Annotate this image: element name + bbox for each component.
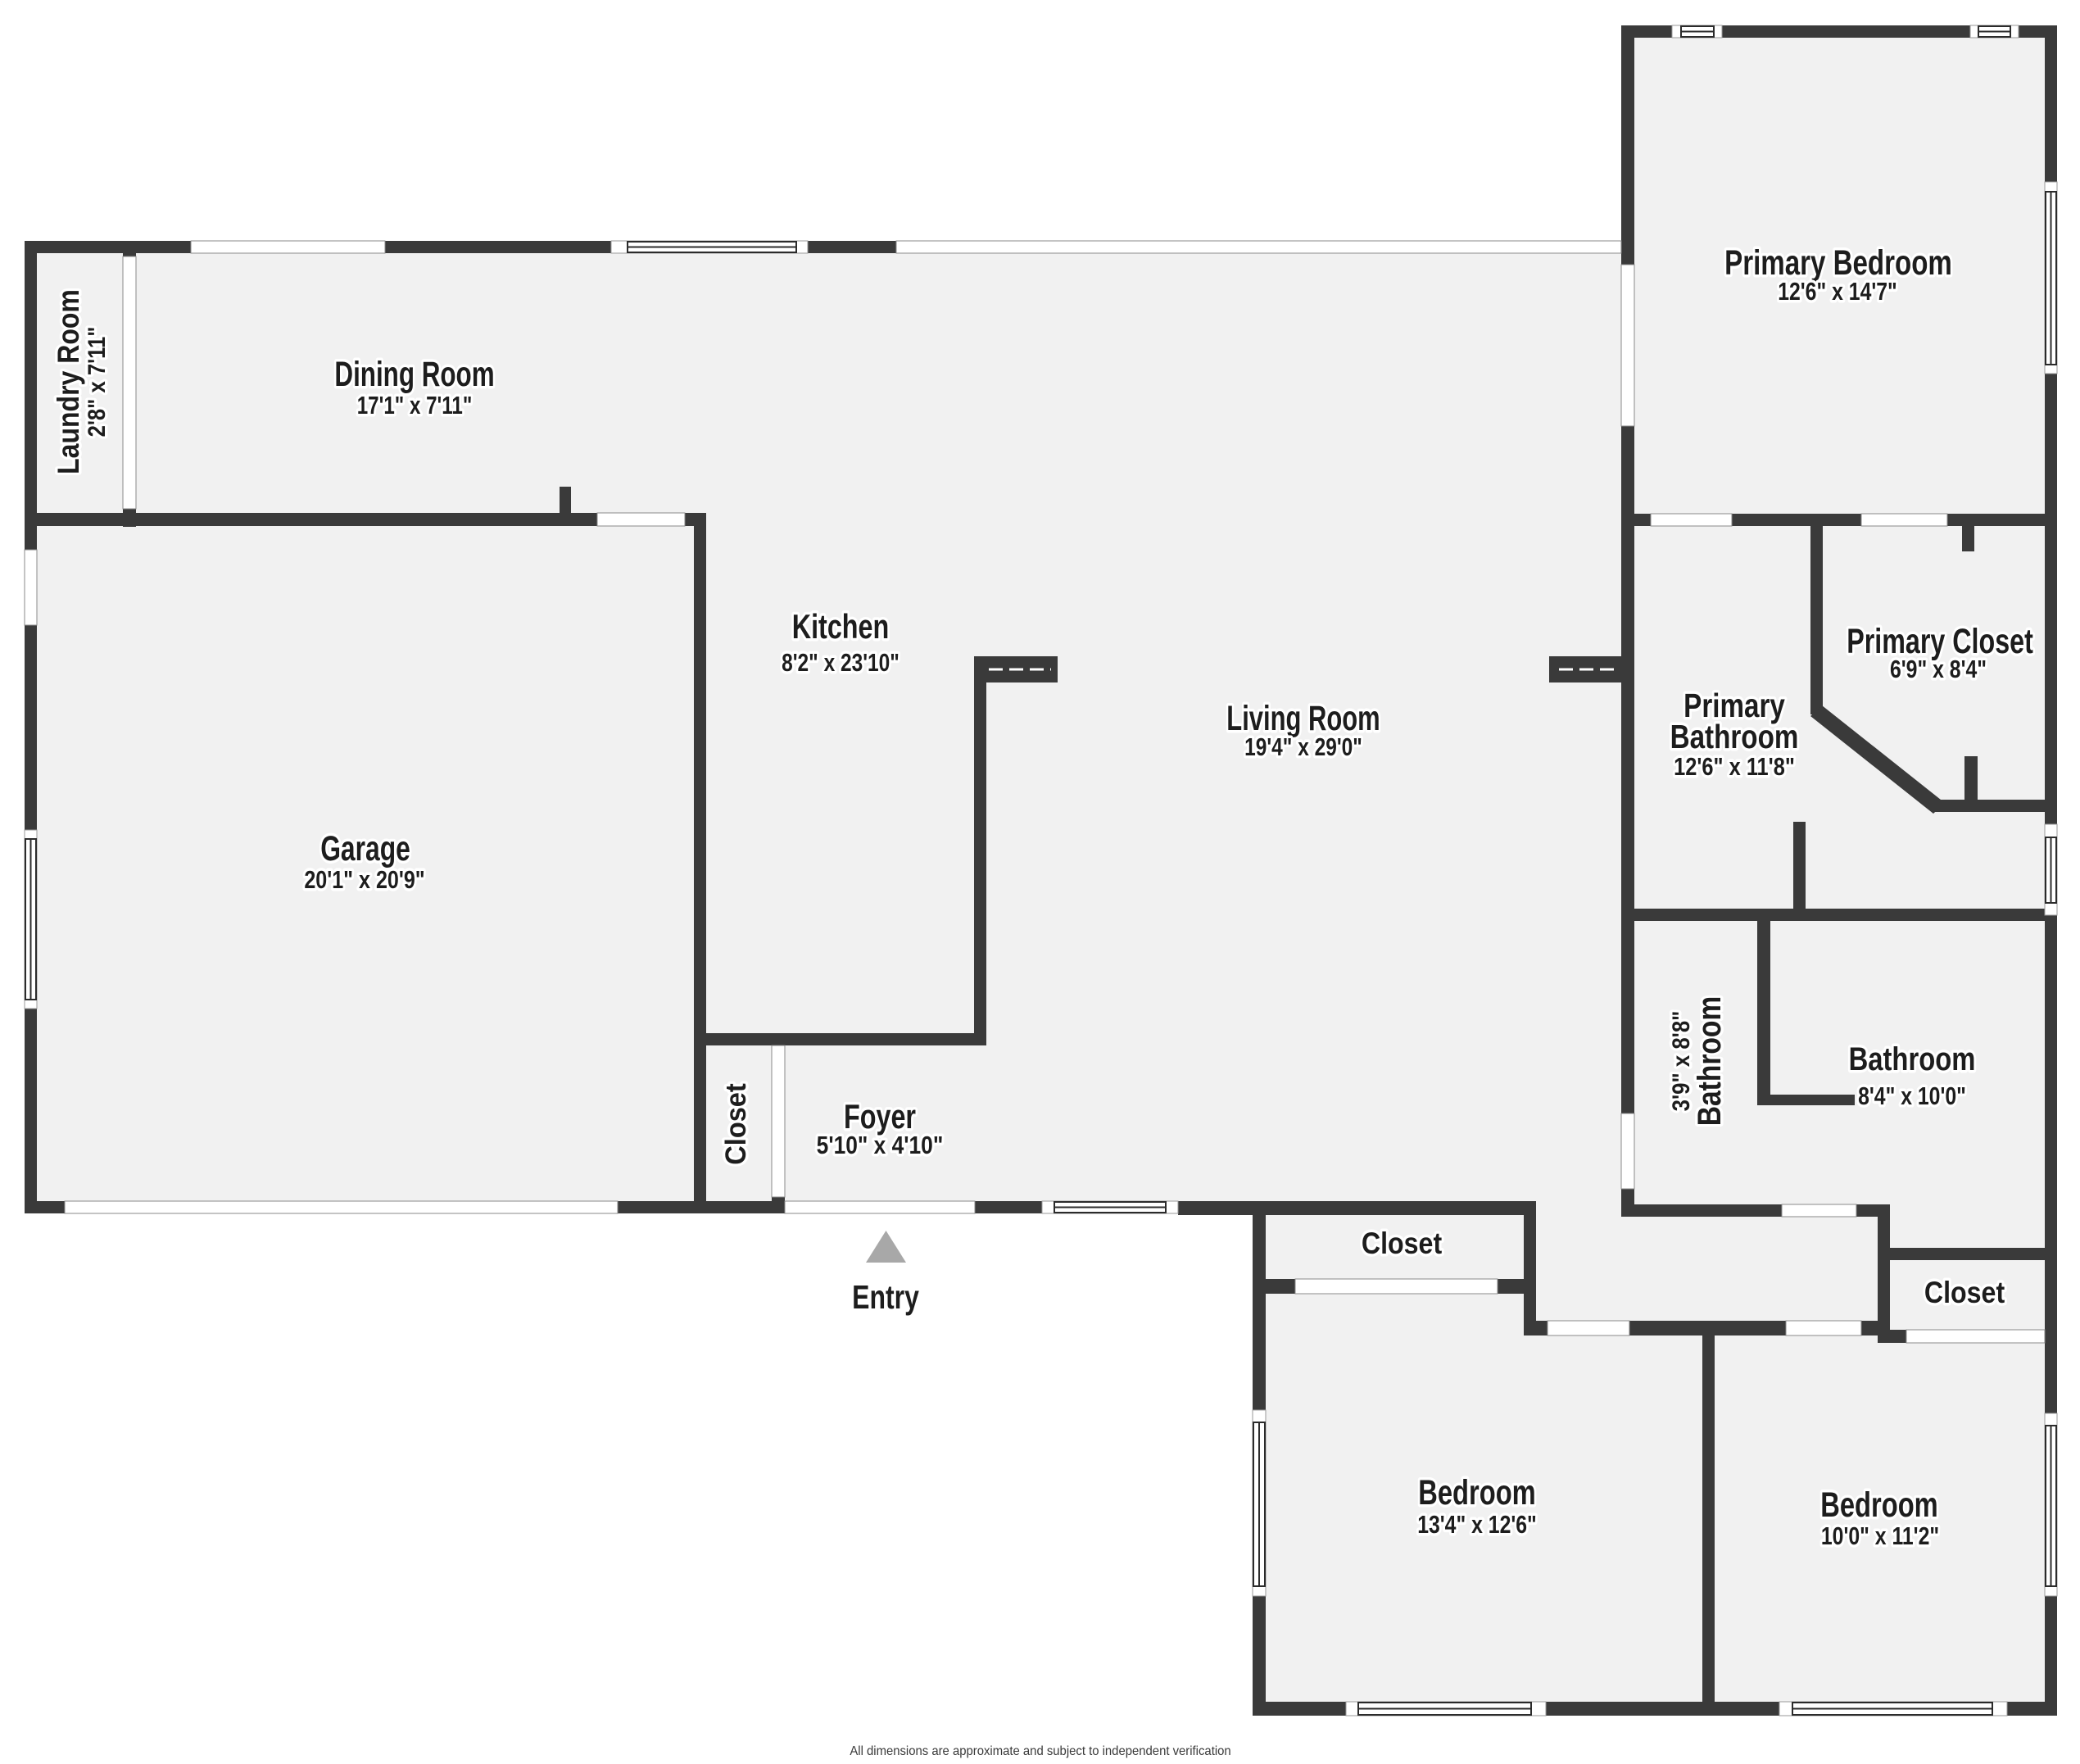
svg-text:12'6" x 11'8": 12'6" x 11'8" [1674,753,1795,782]
svg-text:20'1" x 20'9": 20'1" x 20'9" [304,864,424,893]
svg-text:2'8" x 7'11": 2'8" x 7'11" [83,327,110,438]
svg-text:Dining Room: Dining Room [334,354,494,393]
svg-text:12'6" x 14'7": 12'6" x 14'7" [1778,277,1897,305]
svg-text:Foyer: Foyer [844,1097,916,1136]
svg-text:Closet: Closet [720,1083,752,1164]
svg-text:Bathroom: Bathroom [1849,1041,1976,1077]
svg-text:17'1" x 7'11": 17'1" x 7'11" [357,391,473,419]
svg-text:19'4" x 29'0": 19'4" x 29'0" [1244,732,1362,760]
svg-text:3'9" x 8'8": 3'9" x 8'8" [1667,1011,1694,1112]
svg-text:Bedroom: Bedroom [1418,1473,1535,1512]
svg-text:10'0" x 11'2": 10'0" x 11'2" [1821,1521,1939,1549]
svg-text:5'10" x 4'10": 5'10" x 4'10" [817,1131,944,1159]
svg-text:Closet: Closet [1924,1277,2005,1310]
svg-text:13'4" x 12'6": 13'4" x 12'6" [1417,1510,1537,1538]
svg-text:8'4" x 10'0": 8'4" x 10'0" [1858,1082,1966,1109]
svg-text:Bathroom: Bathroom [1670,718,1799,755]
svg-text:Living Room: Living Room [1226,698,1380,737]
svg-text:8'2" x 23'10": 8'2" x 23'10" [782,648,900,676]
svg-text:Bedroom: Bedroom [1820,1485,1937,1525]
svg-text:Garage: Garage [320,829,410,868]
svg-text:Closet: Closet [1362,1227,1443,1261]
svg-text:Entry: Entry [852,1278,919,1316]
svg-text:All dimensions are approximate: All dimensions are approximate and subje… [850,1744,1230,1759]
svg-text:Bathroom: Bathroom [1691,996,1727,1127]
svg-text:Kitchen: Kitchen [792,607,890,646]
svg-text:6'9" x 8'4": 6'9" x 8'4" [1890,655,1987,682]
svg-text:Laundry Room: Laundry Room [52,289,86,474]
